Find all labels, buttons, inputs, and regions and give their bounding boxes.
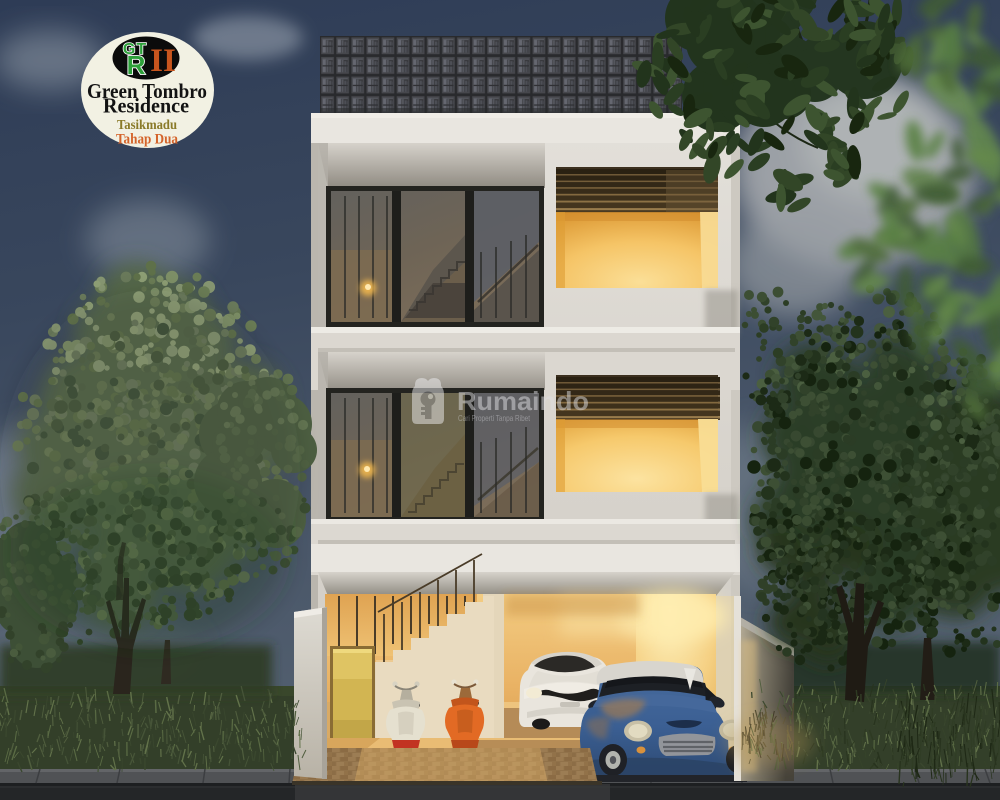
- svg-text:R: R: [127, 50, 146, 80]
- svg-text:Cari Properti Tanpa Ribet: Cari Properti Tanpa Ribet: [458, 413, 530, 423]
- svg-text:II: II: [150, 43, 176, 79]
- svg-text:Tahap Dua: Tahap Dua: [116, 132, 179, 148]
- svg-text:Residence: Residence: [103, 94, 189, 118]
- svg-text:Rumaindo: Rumaindo: [457, 386, 589, 416]
- svg-text:Tasikmadu: Tasikmadu: [117, 117, 177, 132]
